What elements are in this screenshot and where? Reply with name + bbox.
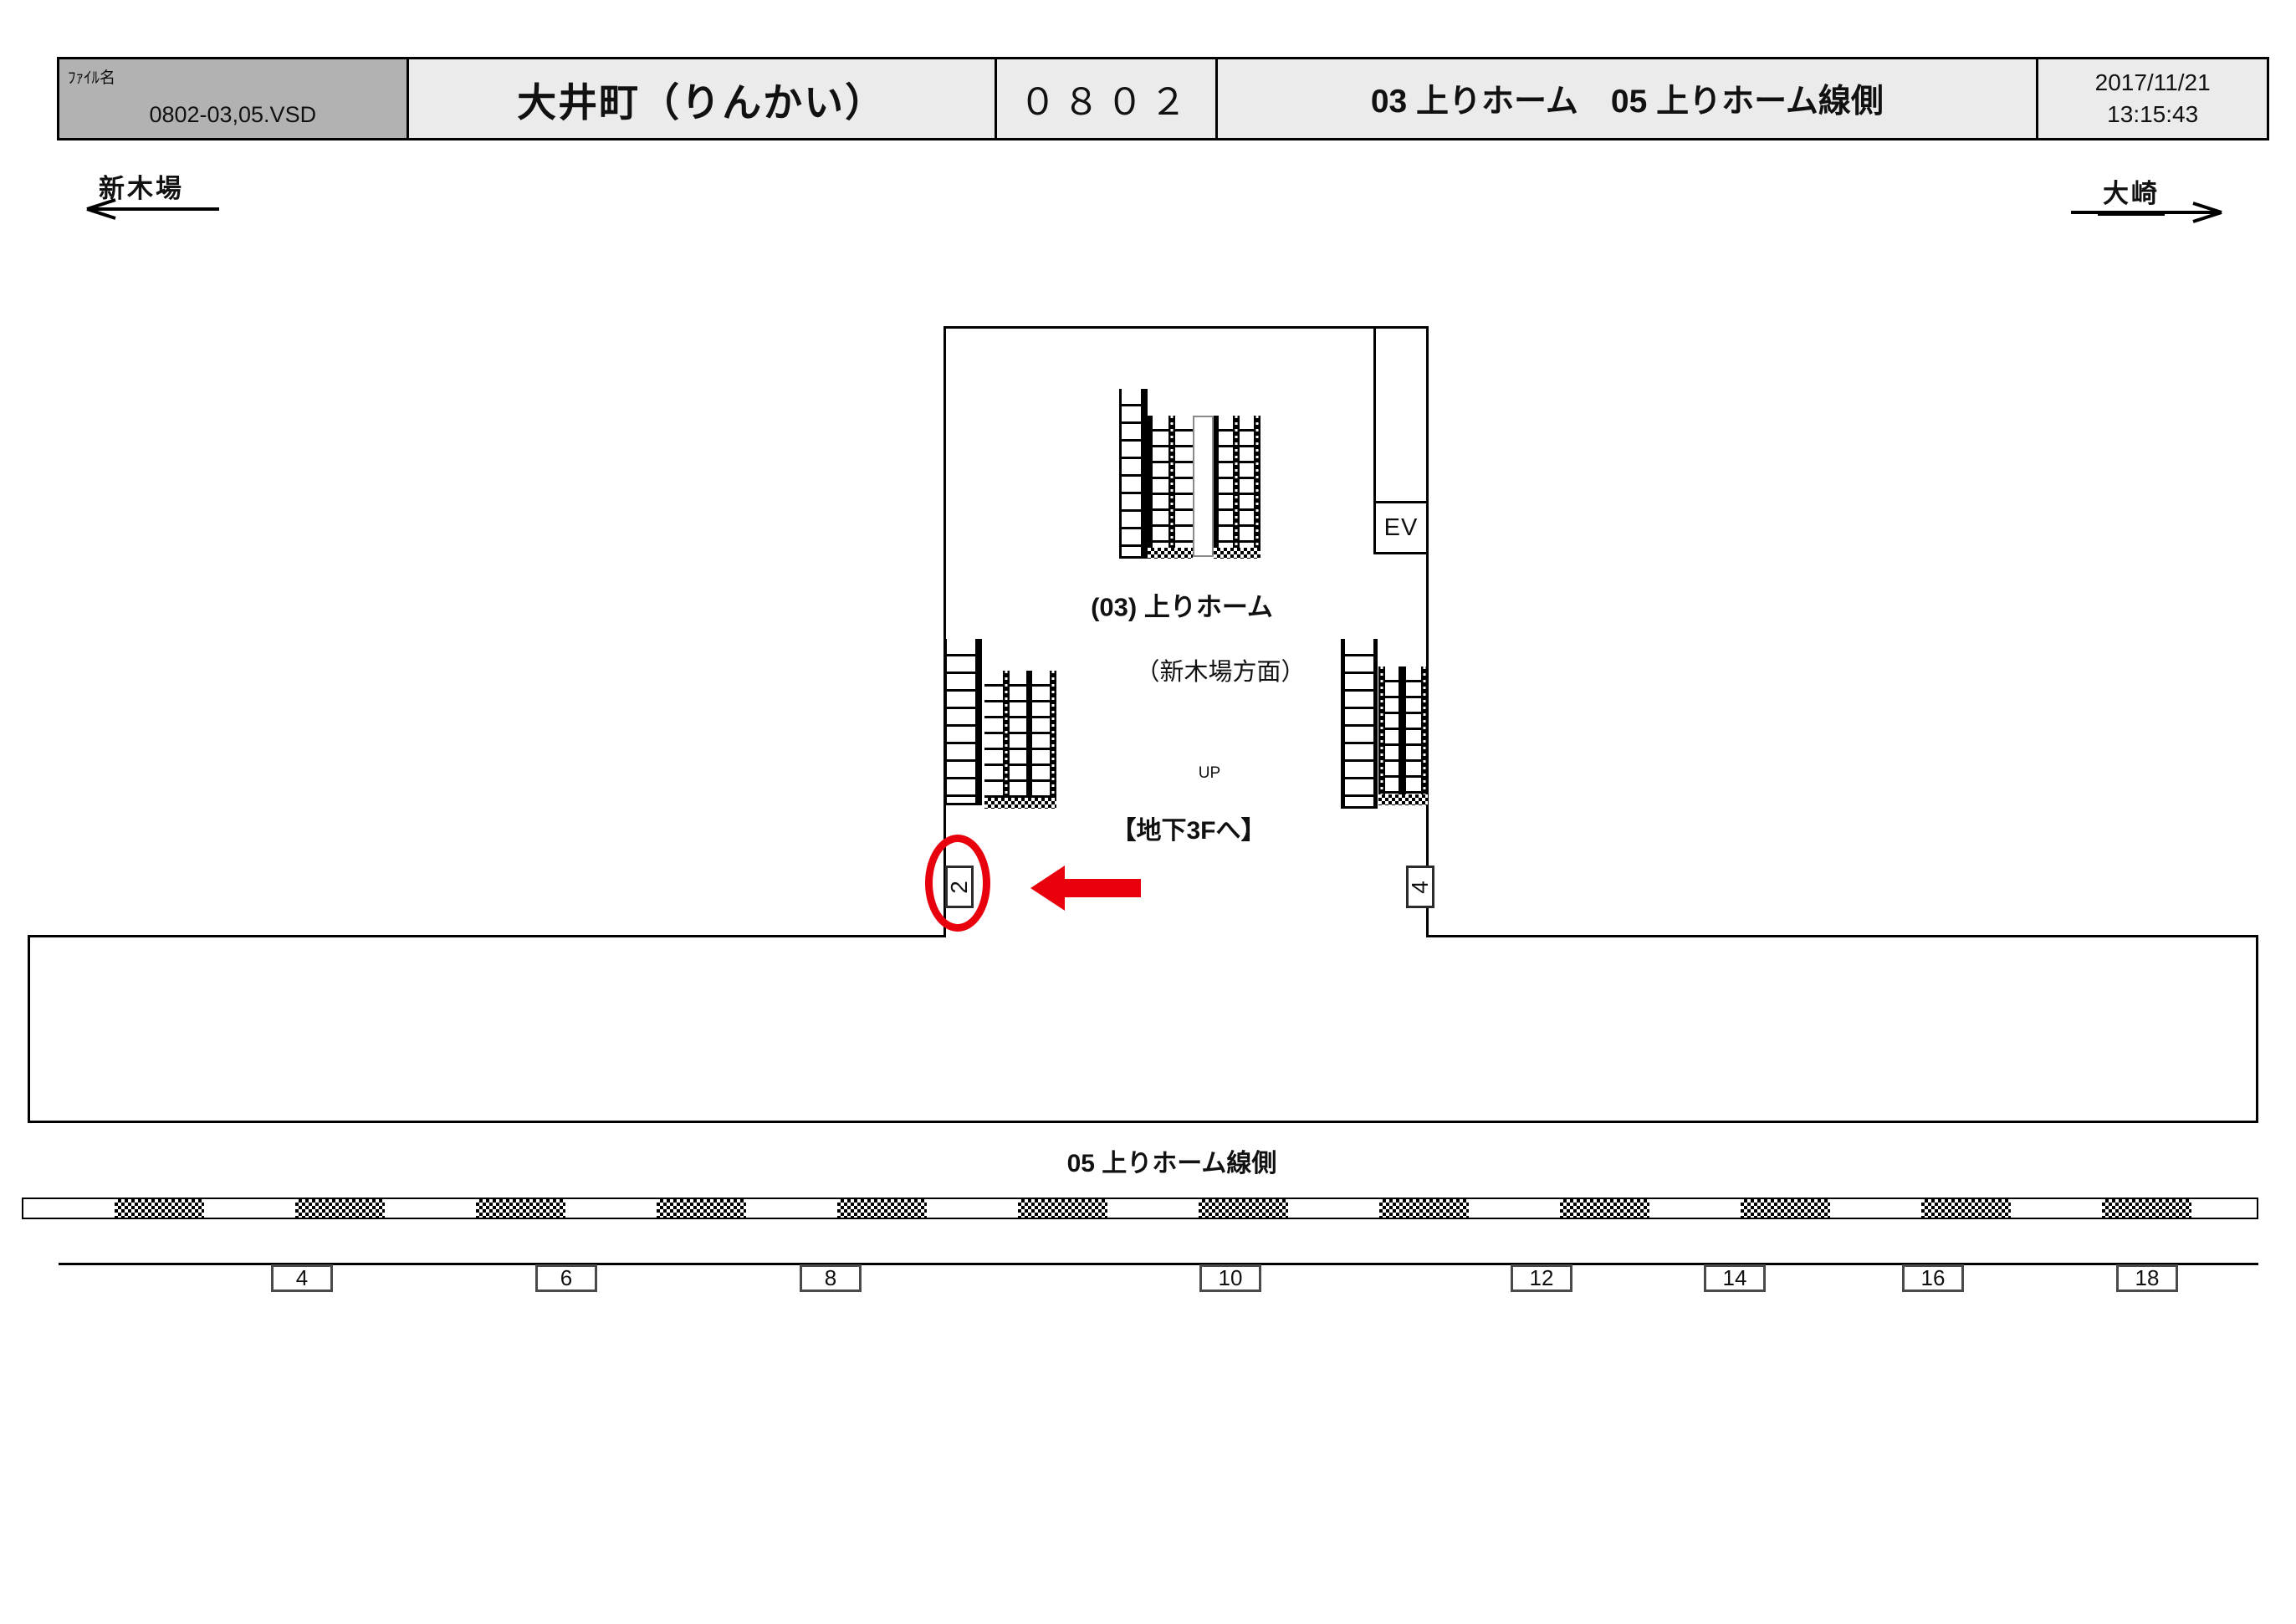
band-segment (1741, 1199, 1830, 1218)
station-name-cell: 大井町（りんかい） (409, 59, 997, 138)
position-box-4-number: 4 (1407, 881, 1434, 894)
trackside-label: 05 上りホーム線側 (1067, 1142, 1277, 1179)
trackside-number: 8 (825, 1265, 836, 1291)
sheet-title: 03 上りホーム 05 上りホーム線側 (1371, 75, 1884, 122)
stair-rail (1026, 671, 1032, 809)
station-diagram-page: ﾌｧｲﾙ名 0802-03,05.VSD 大井町（りんかい） ０８０２ 03 上… (0, 0, 2296, 1624)
trackside-position-box: 14 (1704, 1264, 1766, 1292)
platform-top-edge-right (1426, 935, 2258, 937)
highlight-arrow-shaft (1064, 879, 1141, 897)
elevator-box: EV (1373, 501, 1429, 554)
tactile-strip (1378, 794, 1428, 805)
trackside-number: 12 (1530, 1265, 1554, 1291)
sheet-title-cell: 03 上りホーム 05 上りホーム線側 (1218, 59, 2038, 138)
band-segment (2102, 1199, 2191, 1218)
left-arrow-icon (82, 197, 224, 227)
right-arrow-icon (2069, 201, 2228, 231)
stair-handrail (1168, 416, 1175, 559)
trackside-position-box: 18 (2116, 1264, 2178, 1292)
stair-steps (984, 671, 1003, 809)
band-segment (837, 1199, 927, 1218)
stair-steps (1153, 416, 1168, 559)
trackside-position-box: 12 (1511, 1264, 1572, 1292)
band-segment (1379, 1199, 1469, 1218)
tactile-strip (1214, 548, 1260, 559)
band-segment (1921, 1199, 2011, 1218)
stair-steps (1219, 416, 1233, 559)
band-segment (1560, 1199, 1649, 1218)
floor-label: (03) 上りホーム (1091, 586, 1273, 624)
basement-3f-note: 【地下3Fへ】 (1111, 809, 1266, 846)
highlight-arrow-icon (1030, 866, 1065, 911)
position-box-4: 4 (1406, 866, 1434, 908)
stair-handrail (1233, 416, 1240, 559)
stair-steps (1240, 416, 1254, 559)
trackside-position-box: 16 (1902, 1264, 1964, 1292)
stair-steps (1032, 671, 1050, 809)
platform-top-edge-left (28, 935, 946, 937)
escalator-ladder (944, 639, 982, 805)
stair-handrail (1254, 416, 1260, 559)
stair-handrail (1003, 671, 1010, 809)
station-code: ０８０２ (1020, 72, 1194, 125)
stair-steps (1175, 416, 1193, 559)
stair-strip-group (1214, 416, 1260, 559)
trackside-number: 18 (2135, 1265, 2160, 1291)
stair-steps (1406, 666, 1421, 805)
trackside-number: 16 (1921, 1265, 1946, 1291)
stair-handrail (1378, 666, 1385, 805)
elevator-shaft-wall (1373, 326, 1376, 503)
stair-steps (1010, 671, 1026, 809)
escalator-ladder (1341, 639, 1378, 809)
station-name: 大井町（りんかい） (517, 70, 886, 128)
trackside-position-box: 8 (800, 1264, 862, 1292)
stair-strip-group (1148, 416, 1193, 559)
file-name: 0802-03,05.VSD (59, 102, 407, 128)
header-table: ﾌｧｲﾙ名 0802-03,05.VSD 大井町（りんかい） ０８０２ 03 上… (57, 57, 2269, 140)
trackside-number: 4 (296, 1265, 308, 1291)
stair-steps (1385, 666, 1399, 805)
stair-strip-group (1378, 666, 1428, 805)
stair-strip-group (984, 671, 1056, 809)
trackside-position-box: 6 (535, 1264, 597, 1292)
time-text: 13:15:43 (2107, 99, 2198, 130)
trackside-position-box: 10 (1199, 1264, 1261, 1292)
file-cell: ﾌｧｲﾙ名 0802-03,05.VSD (59, 59, 409, 138)
band-segment (476, 1199, 565, 1218)
timestamp-cell: 2017/11/21 13:15:43 (2038, 59, 2267, 138)
escalator-belt (1193, 416, 1214, 557)
trackside-number: 6 (560, 1265, 572, 1291)
trackside-number: 10 (1219, 1265, 1243, 1291)
band-segment (115, 1199, 204, 1218)
tactile-band (22, 1198, 2258, 1219)
elevator-label: EV (1384, 514, 1419, 542)
band-segment (1018, 1199, 1107, 1218)
station-code-cell: ０８０２ (997, 59, 1219, 138)
band-segment (657, 1199, 746, 1218)
tactile-strip (1148, 548, 1193, 559)
trackside-position-box: 4 (271, 1264, 333, 1292)
concourse-right-wall (1426, 326, 1429, 937)
trackside-number: 14 (1723, 1265, 1747, 1291)
tactile-strip (984, 798, 1056, 809)
escalator-ladder (1119, 389, 1148, 559)
band-segment (295, 1199, 385, 1218)
shinkiba-direction-note: （新木場方面） (1135, 652, 1305, 687)
date-text: 2017/11/21 (2095, 67, 2211, 99)
stair-handrail (1050, 671, 1056, 809)
file-label: ﾌｧｲﾙ名 (68, 65, 115, 88)
highlight-ellipse (925, 835, 990, 932)
platform-outline (28, 935, 2258, 1123)
stair-rail (1399, 666, 1406, 805)
up-label: UP (1199, 764, 1220, 783)
concourse-top-wall (943, 326, 1429, 329)
band-segment (1199, 1199, 1288, 1218)
stair-handrail (1421, 666, 1428, 805)
